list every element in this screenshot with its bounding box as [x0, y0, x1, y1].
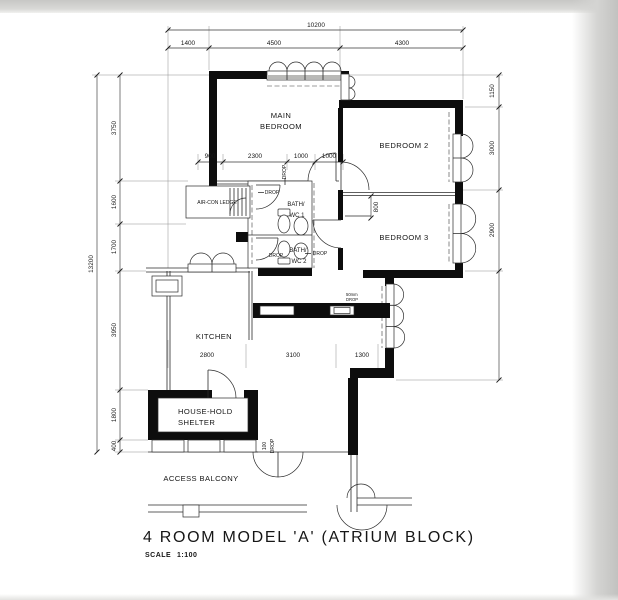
- room-label-aircon-ledge: AIR-CON LEDGE: [197, 200, 237, 206]
- dim-overall-width: 10200: [307, 22, 325, 29]
- drop-note-bath2-right: DROP: [313, 251, 328, 257]
- dim-top-1400: 1400: [181, 40, 196, 47]
- entrance-step-value: 100: [262, 442, 268, 451]
- room-label-kitchen: KITCHEN: [196, 332, 232, 341]
- room-label-bedroom-3: BEDROOM 3: [379, 233, 428, 242]
- room-label-access-balcony: ACCESS BALCONY: [163, 474, 238, 483]
- room-label-bath2-line2: WC 2: [292, 259, 308, 265]
- entrance-step-label: DROP: [270, 438, 276, 453]
- dim-right-2900: 2900: [489, 222, 496, 237]
- dim-right-3000: 3000: [489, 140, 496, 155]
- room-label-bedroom-2: BEDROOM 2: [379, 141, 428, 150]
- dim-left-400: 400: [111, 440, 118, 451]
- dim-inner-1300: 1300: [355, 352, 370, 359]
- floor-plan-drawing: 10200 1400 4500 4300 13200 3750 1600 170…: [0, 0, 618, 600]
- dim-top-4500: 4500: [267, 40, 282, 47]
- scanned-floor-plan-page: 10200 1400 4500 4300 13200 3750 1600 170…: [0, 0, 618, 600]
- balcony-parapet: [152, 440, 256, 452]
- scale-value: 1:100: [177, 552, 197, 559]
- dim-inner-900: 900: [205, 153, 216, 160]
- dim-recess-800: 800: [373, 201, 380, 212]
- drop-note-bath2-left: DROP: [269, 253, 284, 259]
- room-label-bath1-line1: BATH/: [287, 202, 305, 208]
- dim-left-1600: 1600: [111, 194, 118, 209]
- planter-box: [152, 276, 182, 296]
- dim-left-1700: 1700: [111, 239, 118, 254]
- counter-note-line2: DROP: [346, 297, 358, 302]
- dim-top-4300: 4300: [395, 40, 410, 47]
- dim-inner-1000b: 1000: [322, 153, 337, 160]
- drop-note-bath1: DROP: [265, 190, 280, 196]
- dim-inner-3100: 3100: [286, 352, 301, 359]
- window-shading: [267, 75, 341, 79]
- room-label-main-bedroom-line1: MAIN: [271, 111, 292, 120]
- dim-left-3750: 3750: [111, 120, 118, 135]
- scale-label: SCALE: [145, 552, 171, 559]
- drawing-title: 4 ROOM MODEL 'A' (ATRIUM BLOCK): [143, 529, 475, 546]
- dim-right-1150: 1150: [489, 84, 496, 98]
- dim-overall-height: 13200: [88, 255, 95, 273]
- kitchen-counter: [253, 303, 390, 318]
- dim-left-3950: 3950: [111, 322, 118, 337]
- room-label-main-bedroom-line2: BEDROOM: [260, 122, 302, 131]
- dim-inner-2300: 2300: [248, 153, 263, 160]
- dim-inner-2800: 2800: [200, 352, 215, 359]
- room-label-household-shelter-line1: HOUSE-HOLD: [178, 407, 233, 416]
- drop-note-hall: DROP: [282, 164, 288, 179]
- room-label-bath2-line1: BATH/: [289, 248, 307, 254]
- room-label-bath1-line2: WC 1: [290, 213, 306, 219]
- room-label-household-shelter-line2: SHELTER: [178, 418, 215, 427]
- dim-inner-1000a: 1000: [294, 153, 309, 160]
- dim-left-1800: 1800: [111, 407, 118, 422]
